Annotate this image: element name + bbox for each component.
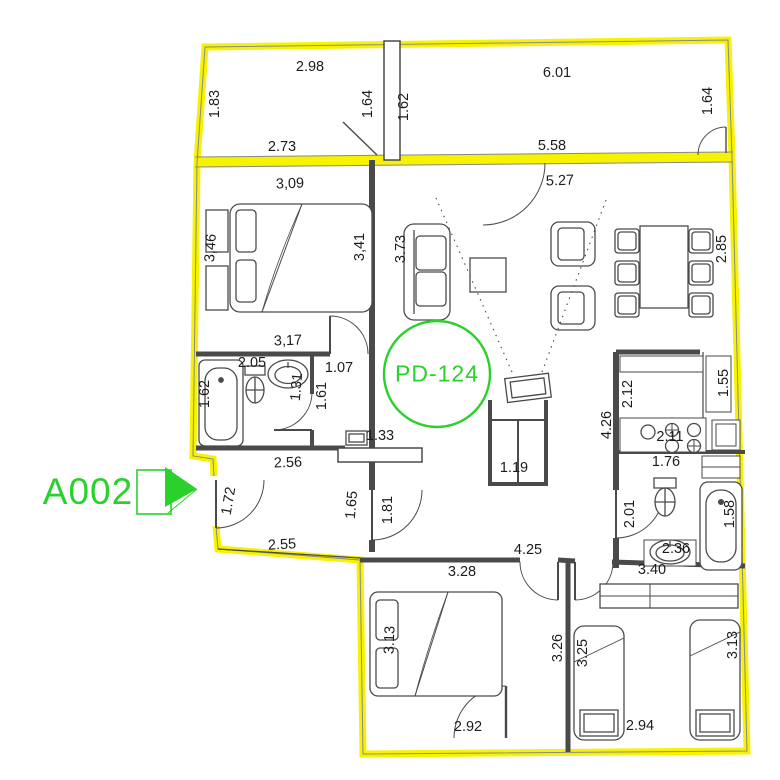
balcony-right-door bbox=[698, 127, 726, 155]
dim-label-bath1-tub: 1.62 bbox=[197, 380, 213, 408]
dim-label-bath2-left: 2.01 bbox=[622, 500, 638, 528]
dim-label-kitchen-left: 2.12 bbox=[620, 380, 636, 408]
sofa bbox=[404, 224, 450, 320]
dim-label-bath2-sink: 2.36 bbox=[662, 541, 690, 557]
dim-label-bedroom3-top: 3.40 bbox=[638, 562, 666, 578]
dim-label-dining-right: 2.85 bbox=[714, 235, 730, 263]
unit-code-label: PD-124 bbox=[395, 361, 479, 388]
dim-label-balcony-right-side-right: 1.64 bbox=[700, 87, 716, 115]
bath2-shelf bbox=[702, 456, 740, 478]
dim-label-balcony-right-side-left: 1.62 bbox=[396, 93, 412, 121]
coffee-table bbox=[470, 258, 506, 292]
dim-label-corridor1-length: 1.61 bbox=[314, 382, 330, 410]
hall-cabinet bbox=[346, 431, 367, 445]
dim-label-bedroom1-top: 3,09 bbox=[276, 176, 305, 193]
dim-label-bath1-top: 2.05 bbox=[238, 355, 266, 371]
dim-label-bedroom3-left: 3.25 bbox=[575, 639, 591, 667]
dim-label-bedroom3-bed: 3.13 bbox=[725, 631, 741, 659]
dim-label-corridor1-width: 1.07 bbox=[325, 360, 353, 376]
dim-label-wc-width: 1.76 bbox=[652, 454, 680, 470]
wardrobe bbox=[600, 584, 738, 608]
dim-label-bottom-corridor: 4.25 bbox=[514, 542, 542, 558]
dim-label-bath1-sink: 1.31 bbox=[288, 372, 306, 402]
toilet-2 bbox=[654, 478, 676, 516]
dim-label-balcony-right-top: 6.01 bbox=[543, 65, 571, 81]
dim-label-living-left: 3.73 bbox=[393, 235, 409, 263]
living-balcony-door bbox=[483, 163, 545, 225]
dim-label-bedroom2-bottom: 2.92 bbox=[454, 719, 482, 735]
armchair-1 bbox=[551, 222, 595, 266]
dim-label-kitchen-counter: 2.11 bbox=[656, 429, 683, 445]
double-bed-1 bbox=[206, 204, 372, 312]
dim-label-bedroom2-right: 3.26 bbox=[550, 634, 566, 662]
dim-label-hall-top: 2.56 bbox=[274, 455, 303, 472]
floor-plan-canvas bbox=[0, 0, 780, 780]
dim-label-bedroom2-bed: 3.13 bbox=[382, 626, 399, 655]
unit-entrance-label: A002 bbox=[43, 471, 133, 513]
dim-label-hall-bottom: 2.55 bbox=[267, 536, 296, 553]
dim-label-balcony-left-side-left: 1.83 bbox=[207, 90, 223, 118]
dim-label-bedroom3-bottom: 2.94 bbox=[626, 718, 654, 734]
dim-label-living-top: 5.27 bbox=[546, 173, 575, 190]
dim-label-kitchen-right: 1.55 bbox=[716, 369, 732, 397]
bedroom1-balcony-door bbox=[343, 122, 377, 155]
dim-label-hall-cabinet: 1.33 bbox=[366, 428, 394, 444]
dim-label-balcony-left-side-right: 1.64 bbox=[360, 90, 376, 118]
dim-label-bedroom1-bottom: 3,17 bbox=[274, 333, 303, 350]
dim-label-hall-door: 1.81 bbox=[380, 496, 396, 524]
bedroom2-top-door bbox=[520, 562, 558, 600]
bedroom1-door bbox=[330, 316, 368, 354]
dining-table-set bbox=[615, 226, 713, 317]
dim-label-hall-left: 1.65 bbox=[343, 490, 361, 520]
toilet-1 bbox=[245, 366, 265, 403]
dim-label-kitchen-wall: 4.26 bbox=[599, 411, 615, 439]
dim-label-balcony-right-bottom: 5.58 bbox=[538, 138, 566, 154]
dim-label-bedroom1-right: 3,41 bbox=[352, 233, 368, 261]
dim-label-tv-unit-width: 1.19 bbox=[500, 460, 528, 476]
armchair-2 bbox=[551, 286, 595, 330]
entrance-marker-icon bbox=[137, 467, 197, 514]
dim-label-bedroom1-left: 3,46 bbox=[202, 233, 220, 262]
floor-plan-page: A002 PD-124 2.986.011.831.641.621.642.73… bbox=[0, 0, 780, 780]
dim-label-bedroom2-top: 3.28 bbox=[448, 564, 476, 580]
dim-label-balcony-left-bottom: 2.73 bbox=[268, 139, 296, 155]
dim-label-bath2-tub: 1.58 bbox=[722, 500, 738, 528]
dim-label-balcony-left-top: 2.98 bbox=[296, 59, 324, 75]
